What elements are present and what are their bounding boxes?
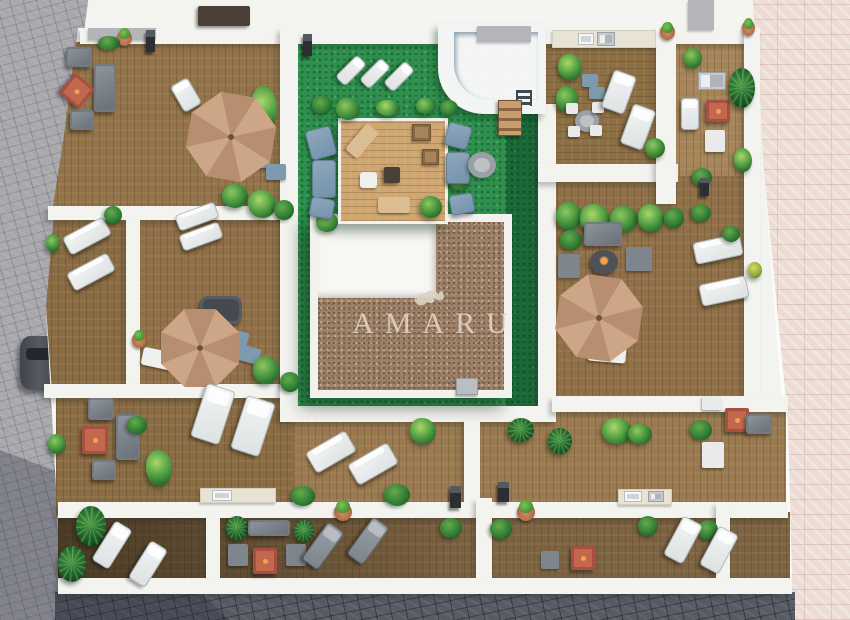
chair-white — [590, 125, 602, 136]
plant — [628, 424, 652, 444]
palm — [226, 516, 248, 540]
lamp — [450, 486, 461, 508]
lamp — [303, 34, 312, 56]
lounger-blue — [305, 125, 338, 161]
bush — [664, 208, 684, 228]
table-red — [253, 548, 277, 574]
sink — [624, 491, 642, 502]
lounger-white — [190, 383, 236, 446]
watermark-text: AMARU — [338, 307, 522, 341]
plant — [146, 450, 172, 486]
palm — [548, 428, 572, 454]
plant — [556, 202, 582, 230]
sink — [212, 490, 232, 501]
sofa-gray — [584, 222, 622, 246]
lounger-gray — [346, 517, 389, 566]
palm — [508, 418, 534, 442]
pot — [742, 20, 755, 36]
chair-white — [705, 130, 725, 152]
bush — [312, 96, 332, 114]
plant — [645, 138, 665, 158]
plant — [734, 148, 752, 172]
bush — [440, 100, 458, 116]
chair-gray — [228, 544, 248, 566]
plant — [420, 196, 442, 218]
mat-white — [360, 172, 377, 188]
lounger-white — [66, 252, 116, 291]
table-red — [82, 426, 108, 454]
gray-wall — [688, 0, 714, 30]
bush — [280, 372, 300, 392]
appliance — [648, 491, 664, 502]
chair-gray — [626, 247, 652, 271]
table-red — [59, 73, 96, 110]
table-dark — [198, 6, 250, 26]
bush — [127, 416, 147, 434]
plant — [684, 48, 702, 68]
bush — [98, 36, 120, 50]
bush — [638, 516, 658, 536]
lounger-blue — [448, 192, 475, 216]
lounger-white — [128, 540, 168, 588]
plant — [410, 418, 436, 444]
lounger-white — [170, 77, 202, 113]
lounger-white — [62, 216, 112, 255]
table-round-gray — [468, 152, 496, 178]
chair-white — [702, 396, 722, 410]
palm — [294, 520, 314, 542]
bush — [384, 484, 410, 506]
mat-tan — [378, 197, 410, 213]
palm — [729, 68, 755, 108]
amaru-monkey-logo-icon — [412, 288, 448, 308]
sink — [578, 33, 594, 45]
pot — [660, 24, 675, 40]
gray-wall — [477, 26, 531, 42]
lounger-white — [663, 515, 703, 564]
lamp — [700, 178, 709, 196]
lounger-white — [681, 98, 699, 130]
sofa-gray — [70, 110, 94, 130]
sofa-gray — [88, 398, 114, 420]
pot — [132, 332, 146, 348]
bush — [690, 420, 712, 440]
sofa-gray — [746, 414, 772, 434]
chair-blue — [266, 164, 286, 180]
plant — [376, 100, 400, 116]
bush — [440, 518, 462, 538]
lounger-white — [698, 275, 750, 306]
chair-gray — [541, 551, 559, 569]
plant — [48, 434, 66, 454]
bush — [490, 519, 512, 539]
pot — [334, 503, 352, 521]
umbrella — [552, 271, 647, 366]
bush — [104, 206, 122, 224]
lounger-white — [230, 395, 276, 458]
sofa-gray — [248, 520, 290, 536]
aerial-render-scene: AMARU — [0, 0, 850, 620]
stairs — [498, 100, 522, 136]
bush — [291, 486, 315, 506]
sofa-gray — [94, 64, 116, 112]
lounger-blue — [312, 160, 336, 198]
bush — [560, 230, 582, 250]
pot — [517, 503, 535, 521]
sofa-gray — [66, 47, 92, 67]
plant — [336, 98, 360, 120]
lounger-blue — [446, 152, 470, 184]
plant — [416, 98, 436, 114]
table-wood — [412, 124, 431, 141]
palm — [58, 546, 86, 582]
sofa-gray — [92, 460, 116, 480]
bush — [691, 204, 711, 222]
umbrella — [161, 309, 239, 387]
lamp — [498, 482, 509, 502]
bush — [722, 226, 740, 242]
palm — [76, 506, 106, 546]
plant — [253, 356, 279, 384]
bush — [274, 200, 294, 220]
plant — [46, 234, 60, 252]
chair-blue — [589, 87, 605, 99]
chair-white — [568, 126, 580, 137]
mat-tan — [345, 123, 379, 159]
plant — [222, 184, 248, 208]
table-red — [571, 546, 595, 570]
plant — [748, 262, 762, 278]
lamp — [146, 30, 155, 52]
firepit-dark — [590, 250, 618, 274]
table-wood — [422, 149, 439, 165]
appliance — [698, 72, 726, 90]
table-dark — [384, 167, 400, 183]
table-red — [706, 100, 730, 122]
lounger-blue — [308, 196, 335, 220]
appliance — [597, 32, 615, 46]
ac-box — [456, 378, 478, 395]
chair-blue — [582, 74, 598, 87]
plant — [638, 204, 664, 232]
chair-white — [702, 442, 724, 468]
plant — [248, 190, 276, 218]
plant — [558, 54, 582, 80]
lounger-blue — [443, 121, 472, 150]
chair-white — [566, 103, 578, 114]
chair-gray — [558, 254, 580, 278]
